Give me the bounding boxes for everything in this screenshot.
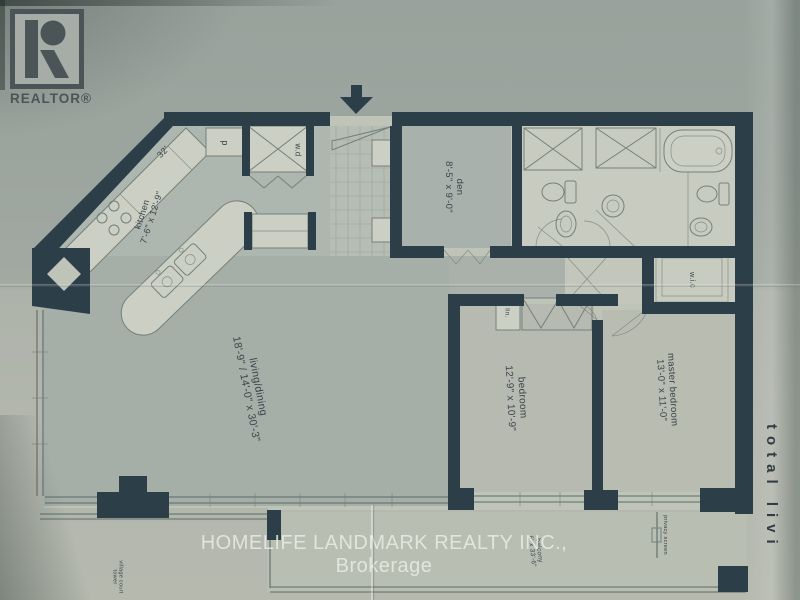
photo-canvas: REALTOR®: [0, 0, 800, 600]
paper-crease-vertical: [371, 505, 373, 600]
label-building-name: village court tower: [111, 560, 124, 593]
label-linen: lin.: [503, 308, 510, 318]
brokerage-watermark: HOMELIFE LANDMARK REALTY INC., Brokerage: [168, 532, 600, 578]
foyer-coat-closet: [252, 214, 308, 248]
label-pantry: p: [220, 140, 230, 145]
label-den: den 8'-5" x 9'-0": [442, 161, 464, 213]
floor-plan-drawing: [0, 0, 800, 600]
paper-crease-horizontal: [0, 284, 800, 287]
label-bedroom: bedroom 12'-9" x 10'-9": [503, 364, 529, 431]
paper-fold-corner: [0, 415, 95, 600]
label-master-bedroom: master bedroom 13'-0" x 11'-0": [653, 353, 679, 427]
total-living-side-text: total livi: [763, 424, 780, 600]
entry-arrow-icon: [340, 85, 373, 114]
label-privacy-screen: privacy screen: [662, 515, 668, 555]
label-washer-dryer: w.d: [293, 144, 302, 157]
